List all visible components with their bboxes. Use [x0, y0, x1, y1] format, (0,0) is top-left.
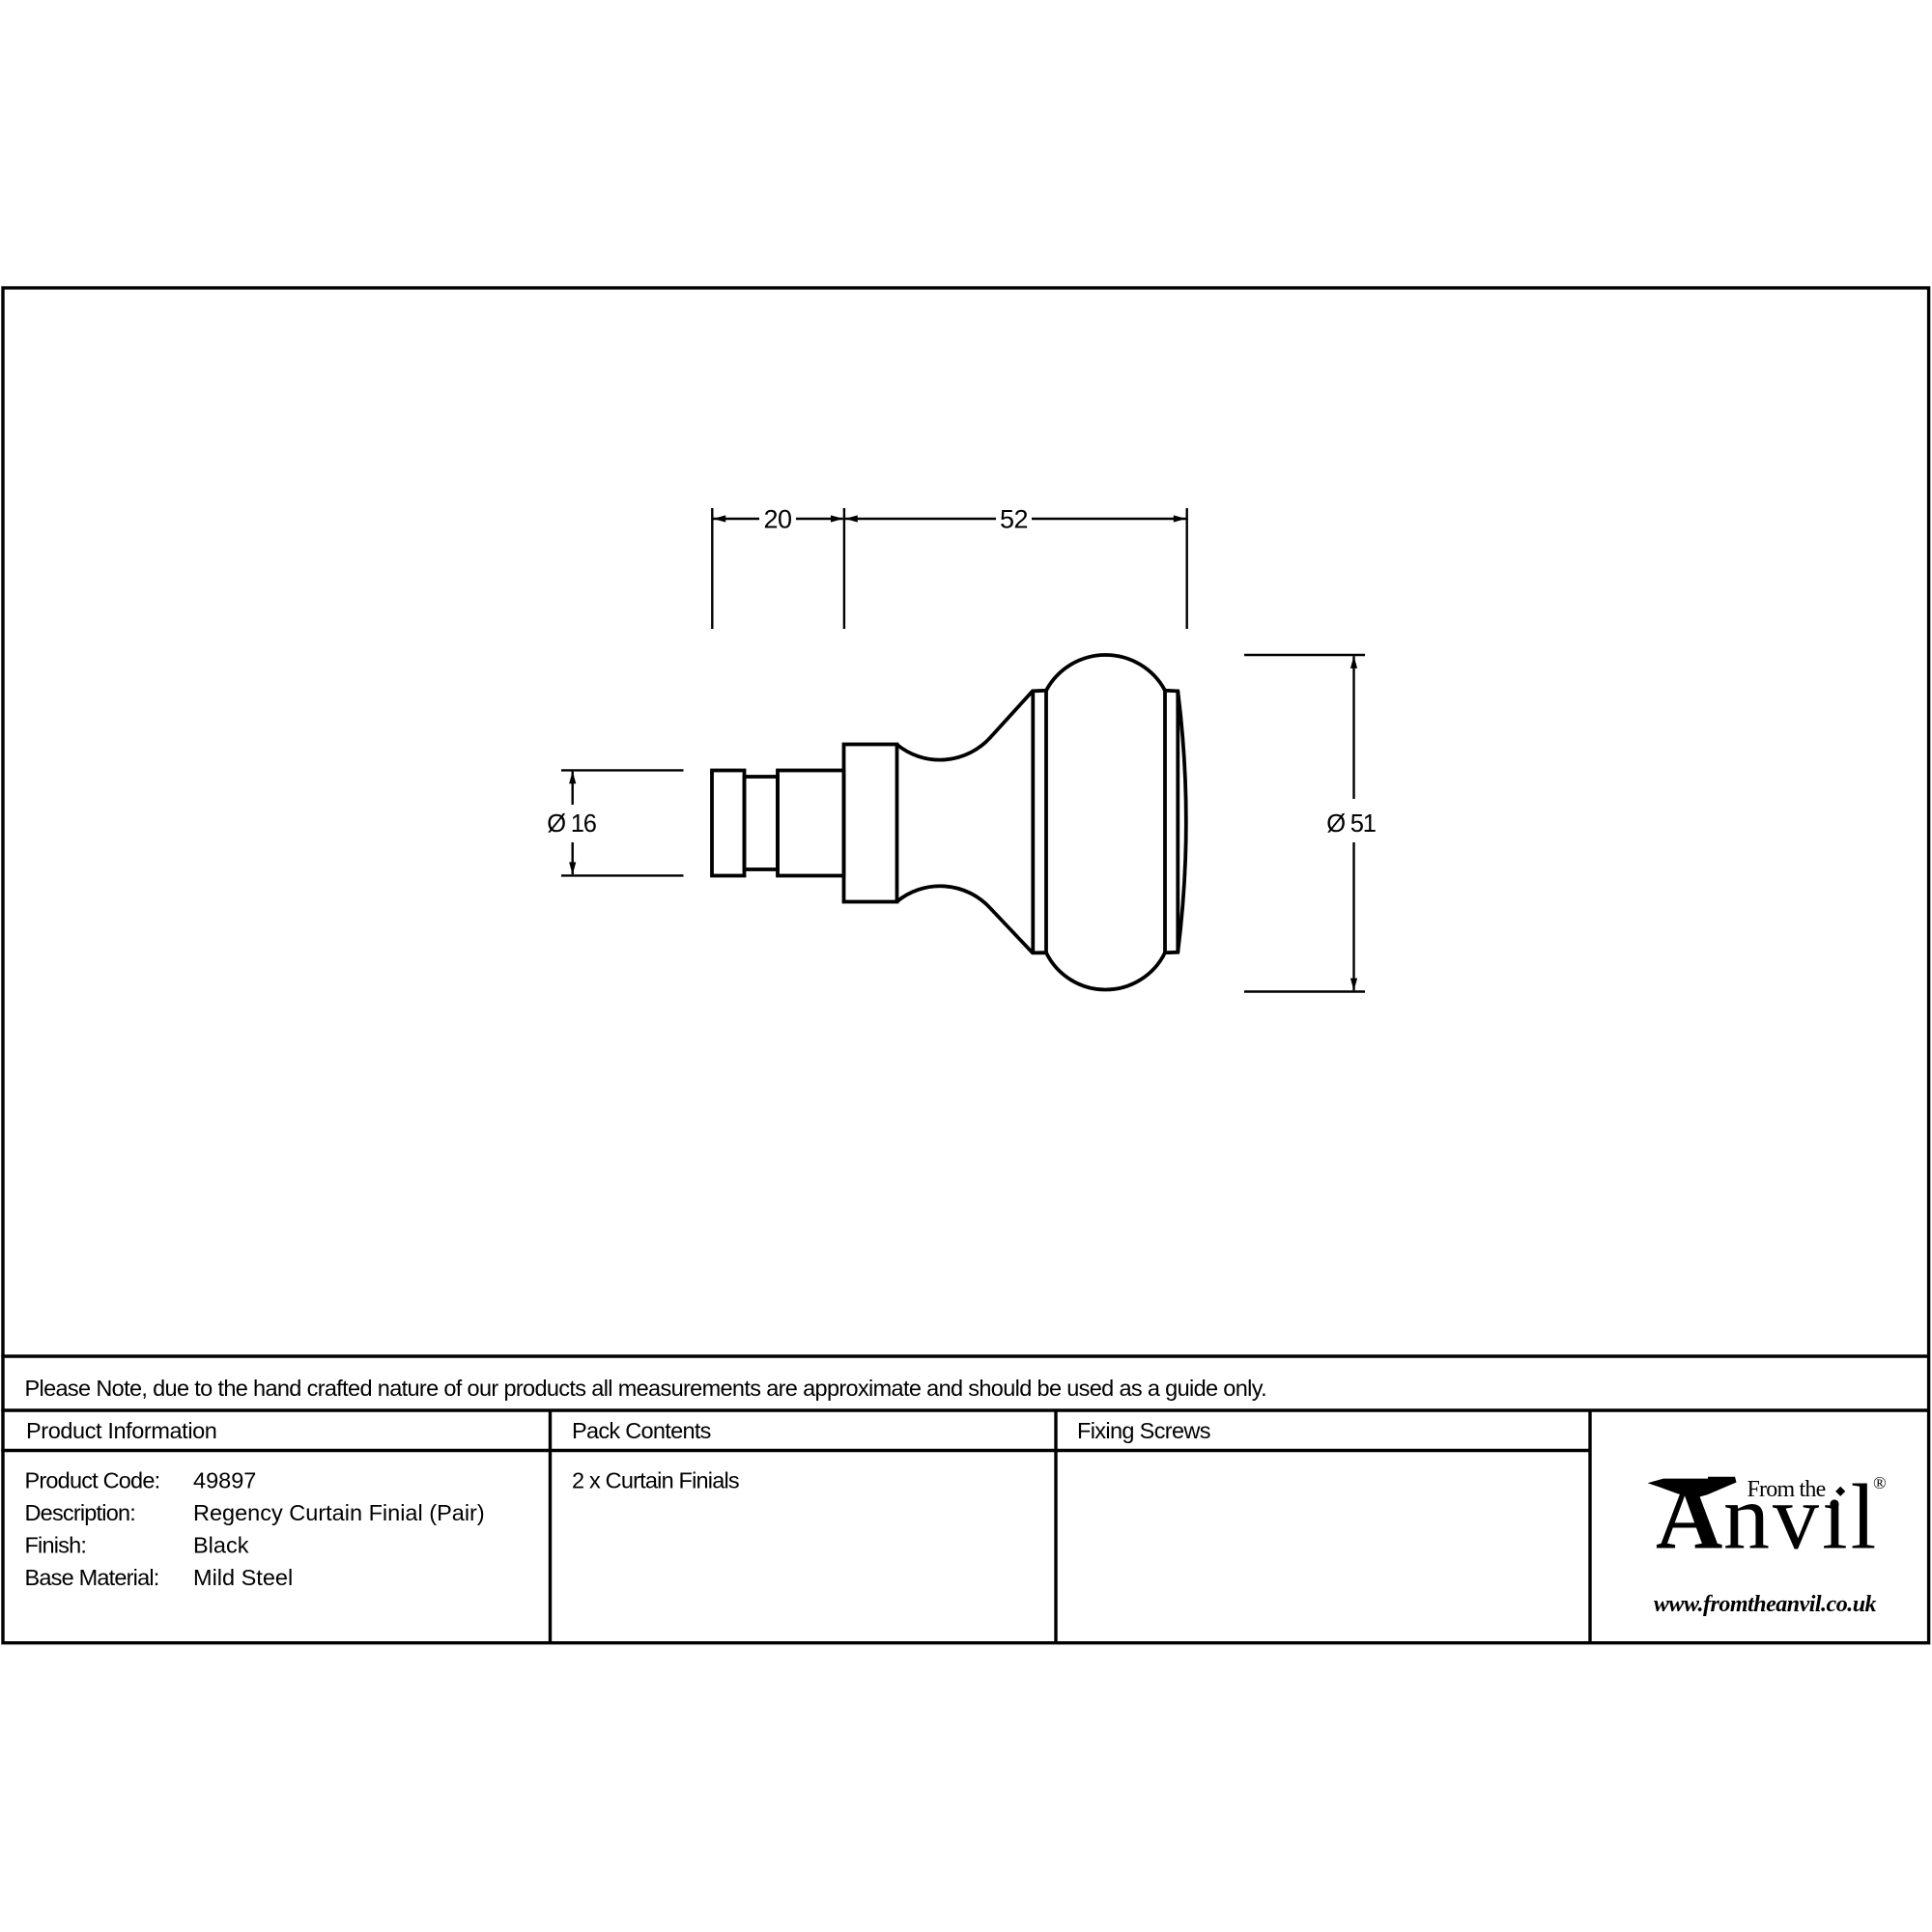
svg-text:Description:: Description: [25, 1500, 135, 1525]
svg-text:Fixing Screws: Fixing Screws [1077, 1418, 1210, 1443]
svg-text:Pack Contents: Pack Contents [572, 1418, 711, 1443]
svg-text:Black: Black [193, 1533, 249, 1558]
svg-text:Finish:: Finish: [25, 1533, 87, 1558]
svg-text:®: ® [1873, 1473, 1887, 1492]
svg-text:Mild Steel: Mild Steel [193, 1565, 293, 1590]
svg-text:Base Material:: Base Material: [25, 1565, 159, 1590]
svg-text:Product Code:: Product Code: [25, 1468, 160, 1493]
svg-text:www.fromtheanvil.co.uk: www.fromtheanvil.co.uk [1654, 1592, 1877, 1617]
svg-text:Product Information: Product Information [26, 1418, 216, 1443]
svg-text:Please Note, due to the hand c: Please Note, due to the hand crafted nat… [25, 1376, 1266, 1401]
svg-text:2 x Curtain Finials: 2 x Curtain Finials [572, 1468, 739, 1493]
svg-text:52: 52 [1000, 505, 1028, 534]
svg-text:Regency Curtain Finial (Pair): Regency Curtain Finial (Pair) [193, 1500, 485, 1525]
svg-text:A: A [1656, 1465, 1724, 1569]
svg-text:From the: From the [1747, 1477, 1826, 1502]
svg-text:Ø 16: Ø 16 [547, 810, 597, 838]
svg-text:49897: 49897 [193, 1468, 256, 1493]
svg-text:20: 20 [763, 505, 791, 534]
svg-text:Ø 51: Ø 51 [1326, 810, 1376, 838]
